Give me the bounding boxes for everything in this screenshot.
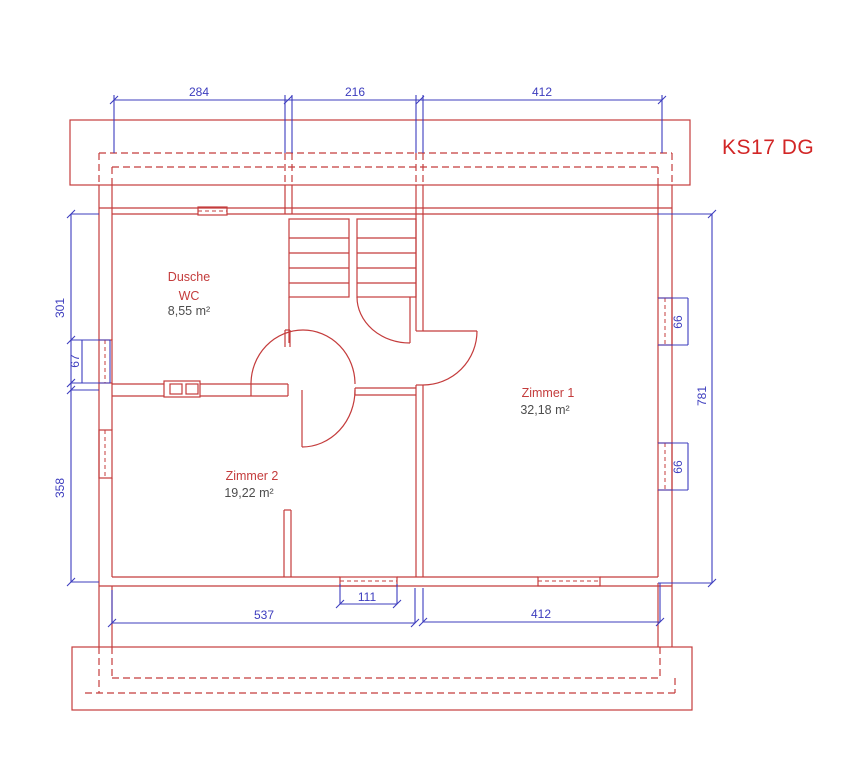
room-name-zimmer2: Zimmer 2	[226, 469, 279, 483]
room-area-dusche: 8,55 m²	[168, 304, 210, 318]
dim-right-66-lower: 66	[671, 460, 685, 474]
dim-top-412: 412	[532, 85, 552, 99]
room-name-zimmer1: Zimmer 1	[522, 386, 575, 400]
window-left-lower	[99, 430, 112, 478]
floorplan-page: 284 216 412 301 67 358 66 7	[0, 0, 852, 757]
dim-chain-left: 301 67 358	[53, 210, 110, 586]
dim-left-358: 358	[53, 478, 67, 498]
dim-right-66-upper: 66	[671, 315, 685, 329]
dim-bottom-412: 412	[531, 607, 551, 621]
door-zimmer1	[423, 331, 477, 385]
door-stairs	[357, 297, 410, 343]
roof-overhang-top	[70, 120, 690, 185]
room-area-zimmer2: 19,22 m²	[224, 486, 273, 500]
dim-left-301: 301	[53, 298, 67, 318]
dim-top-284: 284	[189, 85, 209, 99]
dim-top-216: 216	[345, 85, 365, 99]
door-dusche-swing	[251, 330, 355, 384]
dim-bottom-111: 111	[358, 590, 377, 604]
room-labels: Dusche WC 8,55 m² Zimmer 1 32,18 m² Zimm…	[168, 270, 575, 500]
window-right-lower	[658, 443, 672, 490]
dim-chain-bottom: 537 111 412	[108, 583, 664, 627]
chimney	[164, 381, 200, 397]
exterior-walls	[99, 185, 672, 647]
window-bottom-left	[340, 577, 397, 586]
dim-right-781: 781	[695, 386, 709, 406]
window-bottom-right	[538, 577, 600, 586]
room-area-zimmer1: 32,18 m²	[520, 403, 569, 417]
floorplan-canvas: 284 216 412 301 67 358 66 7	[0, 0, 852, 757]
staircase	[289, 219, 416, 343]
plan-title: KS17 DG	[722, 136, 814, 159]
dim-chain-right: 66 781 66	[658, 210, 716, 587]
dim-left-67: 67	[68, 354, 82, 368]
dim-chain-top: 284 216 412	[110, 85, 666, 153]
room-name-wc: WC	[179, 289, 200, 303]
window-right-upper	[658, 298, 672, 345]
door-zimmer2	[302, 390, 355, 447]
roof-overhang-bottom	[72, 647, 692, 710]
doors	[251, 297, 477, 447]
dim-bottom-537: 537	[254, 608, 274, 622]
room-name-dusche: Dusche	[168, 270, 210, 284]
